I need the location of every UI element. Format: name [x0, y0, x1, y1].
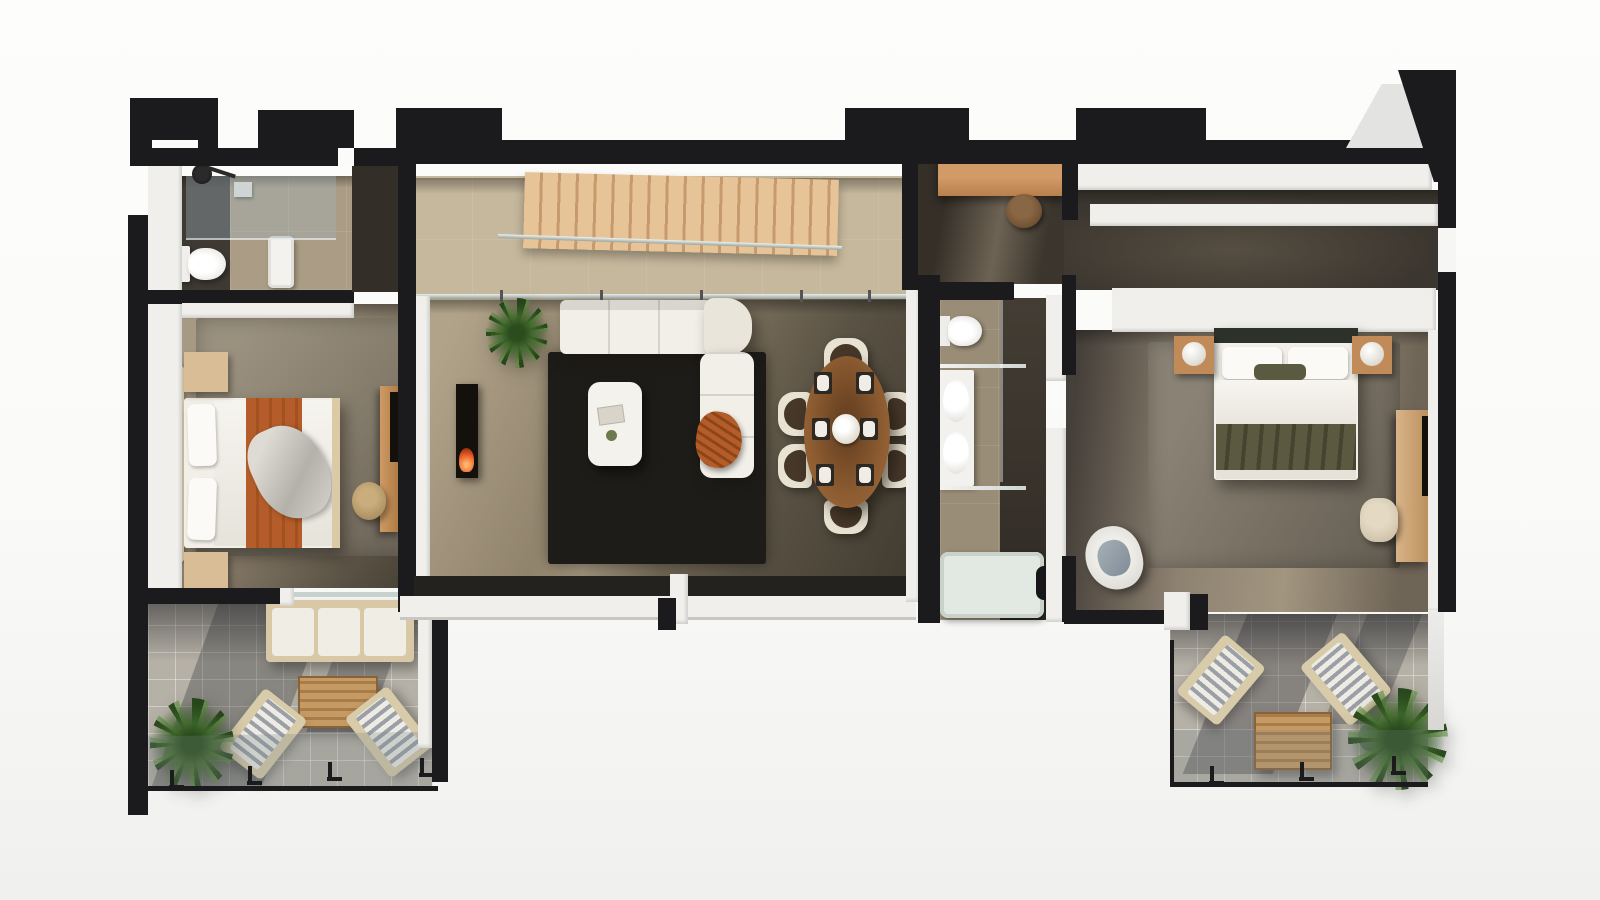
- place-setting: [814, 372, 832, 394]
- railing-post: [328, 762, 332, 778]
- potted-palm: [486, 298, 548, 368]
- vanity-basin: [943, 380, 969, 422]
- terrace-1-door-jamb: [280, 588, 294, 606]
- railing-post: [420, 758, 424, 774]
- floor-plan-render: [0, 0, 1600, 900]
- fireplace-flame: [459, 448, 474, 472]
- centerpiece: [832, 414, 860, 444]
- bed-1-foot-frame: [332, 398, 340, 548]
- railing-post: [248, 766, 252, 782]
- bedroom-2-south-wall: [1064, 610, 1164, 624]
- living-hall-wall: [902, 158, 918, 290]
- stool: [1360, 498, 1398, 542]
- railing-post: [1392, 756, 1396, 772]
- round-pouf: [352, 482, 386, 520]
- toilet: [188, 248, 226, 280]
- bed-2-duvet: [1216, 380, 1356, 426]
- vanity-basin: [943, 432, 969, 474]
- railing-post: [1300, 762, 1304, 778]
- bed-2-foot-frame: [1216, 470, 1356, 479]
- living-south-frame: [414, 576, 906, 598]
- globe-lamp: [1360, 342, 1384, 366]
- place-setting: [812, 418, 830, 440]
- terrace-1-railing: [148, 786, 438, 791]
- balustrade-post: [800, 290, 803, 302]
- terrace-1-glass-tint: [148, 732, 433, 791]
- exterior-wall-block: [396, 108, 502, 146]
- coffee-table: [588, 382, 642, 466]
- bathroom-1-south-wall-face: [182, 303, 354, 318]
- place-setting: [860, 418, 878, 440]
- coffee-table-bowl: [606, 430, 617, 441]
- terrace-2-glass-tint: [1170, 730, 1428, 782]
- wardrobe-shelf-band: [1112, 288, 1436, 332]
- globe-lamp: [1182, 342, 1206, 366]
- hall-bathroom-2-wall: [920, 282, 1014, 300]
- bed-2-headboard: [1214, 328, 1358, 343]
- place-setting: [816, 464, 834, 486]
- terrace-2-railing-left: [1170, 640, 1174, 786]
- terrace-1-east-wall-face: [418, 598, 432, 748]
- vanity-shelf: [938, 486, 1026, 490]
- bed-2-olive-throw: [1216, 424, 1356, 472]
- wardrobe-run-upper: [1064, 164, 1432, 190]
- sofa-chaise: [704, 298, 752, 356]
- coffee-table-books: [597, 404, 625, 425]
- outdoor-sofa-cushion: [272, 608, 314, 656]
- terrace-2-east-wall-face: [1428, 610, 1444, 730]
- bathroom-2-west-wall: [918, 275, 940, 623]
- palm-foliage: [486, 298, 548, 368]
- sofa-main-back: [560, 300, 712, 310]
- toilet: [948, 316, 982, 346]
- desk-stool: [1006, 194, 1042, 228]
- wardrobe-run-inner: [1090, 204, 1438, 226]
- nightstand: [184, 552, 228, 592]
- shower-glass-screen: [186, 176, 336, 240]
- balustrade-post: [868, 290, 871, 302]
- exterior-wall-band: [130, 148, 412, 166]
- bedroom-1-east-wall: [398, 160, 416, 612]
- west-exterior-wall: [128, 215, 148, 815]
- bed-1-pillow: [187, 404, 217, 467]
- bathroom-2-east-wall-top: [1062, 275, 1076, 375]
- living-west-wall-face: [416, 296, 430, 602]
- closet-wall-shadow: [1064, 190, 1438, 204]
- terrace-1-east-wall: [432, 598, 448, 782]
- exterior-wall-gap: [338, 148, 354, 166]
- place-setting: [856, 464, 874, 486]
- terrace-2-door-post: [1190, 594, 1208, 630]
- railing-post: [170, 770, 174, 786]
- bathroom-1-south-wall: [148, 290, 354, 304]
- terrace-2-door-jamb: [1164, 592, 1190, 630]
- sliding-door-post: [658, 598, 676, 630]
- exterior-wall-block: [845, 108, 969, 146]
- exterior-wall-block: [1076, 108, 1206, 146]
- outdoor-sofa-cushion: [318, 608, 360, 656]
- bed-1-pillow: [187, 478, 217, 541]
- wardrobe-strip: [352, 166, 398, 292]
- vanity-shelf: [938, 364, 1026, 368]
- bathtub: [940, 552, 1044, 618]
- west-wall-face: [148, 160, 182, 602]
- shower-glass-line: [1000, 300, 1003, 482]
- nightstand: [184, 352, 228, 392]
- place-setting: [856, 372, 874, 394]
- bedroom-1-south-wall: [148, 588, 280, 604]
- east-wall-window: [1438, 228, 1456, 272]
- bed-2-lumbar-pillow: [1254, 364, 1306, 380]
- railing-post: [1210, 766, 1214, 782]
- washbasin: [268, 236, 294, 288]
